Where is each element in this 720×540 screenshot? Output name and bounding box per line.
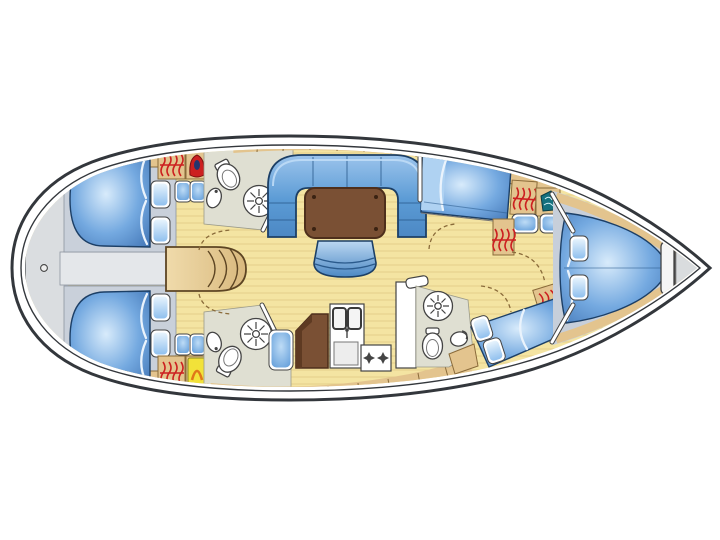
pillow	[151, 217, 170, 244]
deck-fitting-icon	[41, 265, 48, 272]
stern-platform	[0, 120, 68, 420]
seat-cushion	[175, 334, 191, 355]
toilet-icon	[423, 328, 443, 359]
seat-cushion	[512, 214, 538, 233]
pillow	[570, 275, 588, 300]
head-wall	[396, 282, 416, 368]
salon-stool	[314, 241, 376, 277]
stove	[361, 345, 391, 371]
engine-space	[60, 252, 170, 285]
wardrobe	[492, 219, 516, 255]
sink-basin	[348, 308, 361, 329]
yacht-floorplan	[0, 0, 720, 540]
shower-icon	[424, 292, 453, 321]
companionway-steps	[166, 247, 246, 291]
shower-icon	[241, 319, 272, 350]
pillow	[151, 330, 170, 357]
pillow	[151, 181, 170, 208]
seat-cushion	[175, 181, 191, 202]
sink-basin	[333, 308, 346, 329]
floorplan-svg	[0, 0, 720, 540]
salon-table	[305, 188, 385, 238]
hanging-locker	[510, 180, 538, 216]
pillow	[570, 236, 588, 261]
headboard	[661, 241, 674, 295]
pillow	[151, 294, 170, 321]
nav-seat	[269, 330, 293, 370]
